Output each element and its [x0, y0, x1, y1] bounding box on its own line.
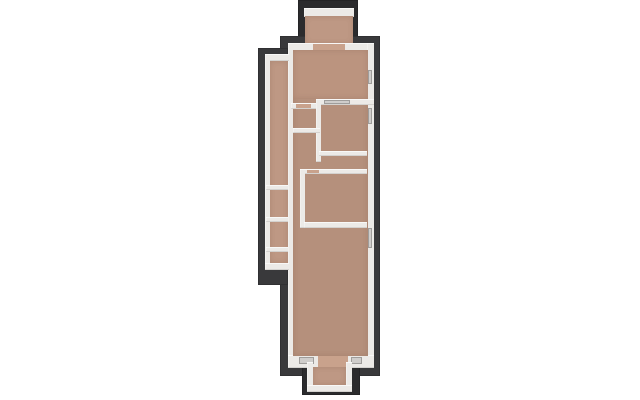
- inner-wall-h3: [319, 151, 367, 156]
- bottom-balcony-wall-front: [307, 385, 352, 392]
- side-balcony-divider-3: [266, 247, 288, 252]
- window-right-1: [368, 70, 372, 84]
- side-balcony-divider-2: [266, 217, 288, 222]
- window-right-2: [368, 108, 372, 124]
- inner-wall-h2: [293, 128, 320, 133]
- door-top-balcony: [313, 44, 345, 50]
- inner-wall-v2: [300, 169, 305, 228]
- side-balcony-bottom-wall: [265, 263, 289, 270]
- top-balcony-floor: [305, 16, 353, 44]
- side-balcony-divider-1: [266, 185, 288, 190]
- door-hall-top: [296, 104, 311, 108]
- window-bottom-right: [351, 357, 362, 364]
- glass-door-bedroom: [324, 100, 350, 104]
- window-right-3: [368, 228, 372, 248]
- door-mid-room: [307, 170, 319, 173]
- side-balcony-floor: [270, 61, 288, 263]
- bottom-balcony-floor: [313, 367, 346, 385]
- bedroom-top-floor: [293, 50, 368, 99]
- inner-wall-h5: [304, 222, 367, 228]
- outer-wall-right: [367, 43, 374, 362]
- floor-plan-canvas: [0, 0, 640, 400]
